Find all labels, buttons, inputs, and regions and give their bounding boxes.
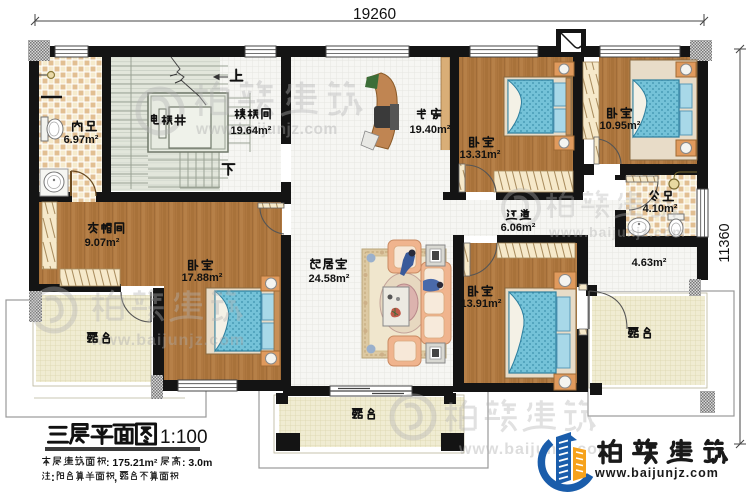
svg-text:17.88m²: 17.88m² xyxy=(182,272,223,284)
svg-text:24.58m²: 24.58m² xyxy=(309,273,350,285)
svg-text:19.64m²: 19.64m² xyxy=(231,125,272,137)
svg-text:6.97m²: 6.97m² xyxy=(64,134,99,146)
svg-text:4.10m²: 4.10m² xyxy=(643,203,678,215)
svg-text:,: , xyxy=(114,472,117,484)
svg-text:www.baijunjz.com: www.baijunjz.com xyxy=(548,224,686,240)
svg-text::: : xyxy=(51,472,55,484)
svg-text:6.06m²: 6.06m² xyxy=(501,222,536,234)
svg-text:1:100: 1:100 xyxy=(160,427,208,448)
svg-text:13.31m²: 13.31m² xyxy=(460,149,501,161)
svg-text:: 3.0m: : 3.0m xyxy=(182,457,212,469)
svg-text:19.40m²: 19.40m² xyxy=(410,124,451,136)
svg-text:10.95m²: 10.95m² xyxy=(600,120,641,132)
svg-text:11360: 11360 xyxy=(717,223,733,262)
svg-text:: 175.21m²: : 175.21m² xyxy=(106,457,158,469)
svg-text:13.91m²: 13.91m² xyxy=(461,298,502,310)
svg-text:9.07m²: 9.07m² xyxy=(85,237,120,249)
svg-text:www.baijunjz.com: www.baijunjz.com xyxy=(90,332,245,349)
svg-text:19260: 19260 xyxy=(353,6,396,23)
svg-text:4.63m²: 4.63m² xyxy=(632,257,667,269)
svg-text:www.baijunjz.com: www.baijunjz.com xyxy=(594,466,719,480)
svg-text:www.baijunjz.com: www.baijunjz.com xyxy=(458,441,613,458)
